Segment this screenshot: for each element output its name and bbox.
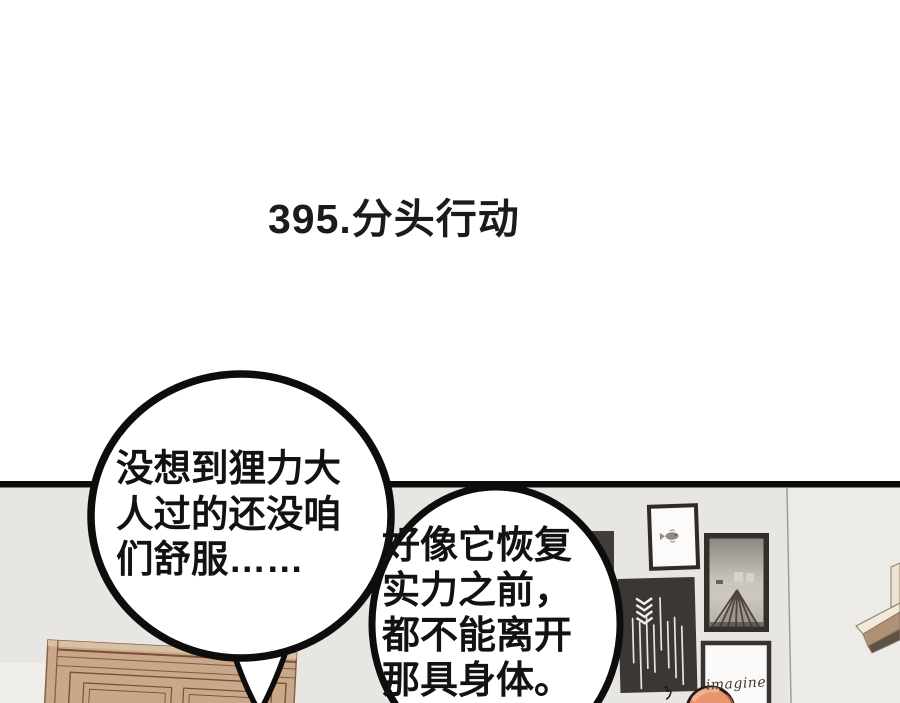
speech-line: 人过的还没咱 [116, 492, 341, 538]
fish-frame [649, 505, 698, 569]
comic-page: 395.分头行动 [0, 0, 900, 703]
speech-line: 实力之前， [382, 569, 572, 614]
speech-line: 们舒服…… [116, 537, 341, 583]
speech-bubble-2-text: 好像它恢复 实力之前， 都不能离开 那具身体。 [382, 524, 572, 703]
barcode-poster [618, 577, 698, 693]
wall-light-patch [0, 663, 46, 703]
speech-line: 没想到狸力大 [116, 446, 341, 492]
speech-line: 那具身体。 [382, 659, 572, 703]
wall-right [788, 484, 900, 703]
speech-line: 好像它恢复 [382, 524, 572, 569]
speech-line: 都不能离开 [382, 614, 572, 659]
pier-photo-frame [704, 533, 769, 632]
speech-bubble-1-text: 没想到狸力大 人过的还没咱 们舒服…… [116, 446, 341, 583]
imagine-poster-text: imagine [705, 674, 768, 693]
